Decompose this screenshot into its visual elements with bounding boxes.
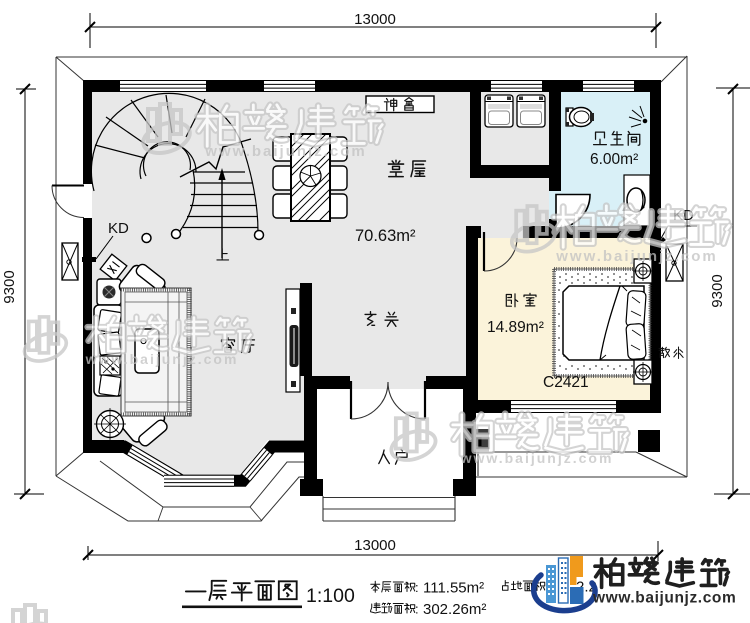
svg-text:www.baijunjz.com: www.baijunjz.com bbox=[592, 590, 736, 607]
svg-text:13000: 13000 bbox=[354, 11, 396, 28]
svg-text:70.63m²: 70.63m² bbox=[355, 227, 416, 245]
svg-text::: : bbox=[415, 602, 419, 617]
svg-text::: : bbox=[415, 580, 419, 595]
svg-text:302.26m²: 302.26m² bbox=[423, 601, 486, 618]
svg-text:111.55m²: 111.55m² bbox=[423, 580, 484, 597]
svg-text:9300: 9300 bbox=[709, 274, 726, 307]
svg-text:KD: KD bbox=[108, 220, 129, 237]
svg-text:www.baijunjz.com: www.baijunjz.com bbox=[85, 351, 239, 367]
svg-text:13000: 13000 bbox=[354, 537, 396, 554]
svg-text:www.baijunjz.com: www.baijunjz.com bbox=[555, 248, 717, 265]
svg-text:1:100: 1:100 bbox=[306, 585, 355, 607]
svg-text:www.baijunjz.com: www.baijunjz.com bbox=[460, 450, 614, 466]
svg-text:C2421: C2421 bbox=[543, 374, 589, 391]
svg-text:14.89m²: 14.89m² bbox=[487, 319, 544, 336]
svg-text:6.00m²: 6.00m² bbox=[590, 151, 638, 168]
svg-text:9300: 9300 bbox=[1, 270, 18, 303]
svg-text:www.baijunjz.com: www.baijunjz.com bbox=[204, 143, 366, 160]
